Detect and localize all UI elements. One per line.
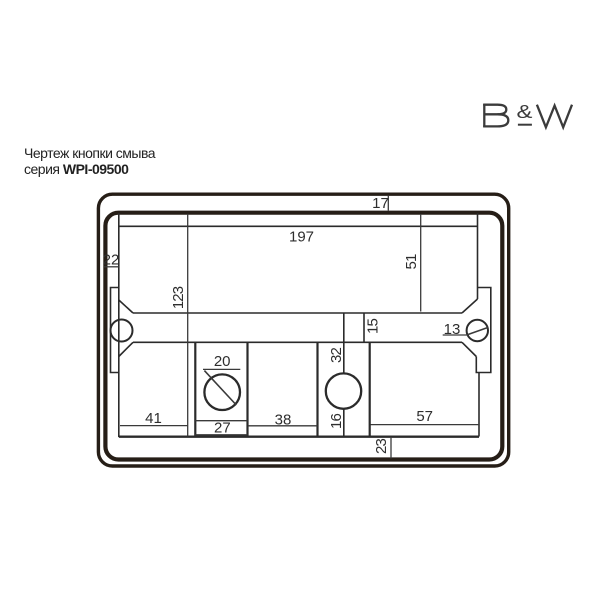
svg-text:22: 22: [103, 252, 120, 269]
svg-text:41: 41: [145, 410, 162, 427]
svg-text:51: 51: [403, 254, 420, 269]
svg-text:23: 23: [373, 439, 390, 454]
svg-text:16: 16: [328, 414, 345, 429]
svg-text:197: 197: [289, 229, 314, 246]
svg-text:15: 15: [365, 319, 382, 334]
svg-text:20: 20: [214, 353, 231, 370]
svg-text:123: 123: [170, 286, 187, 309]
svg-text:27: 27: [214, 420, 231, 437]
svg-text:17: 17: [372, 195, 389, 212]
svg-text:32: 32: [328, 348, 345, 363]
svg-text:&: &: [517, 102, 533, 123]
svg-text:57: 57: [416, 408, 433, 425]
svg-text:38: 38: [275, 412, 292, 429]
svg-text:13: 13: [444, 321, 461, 338]
